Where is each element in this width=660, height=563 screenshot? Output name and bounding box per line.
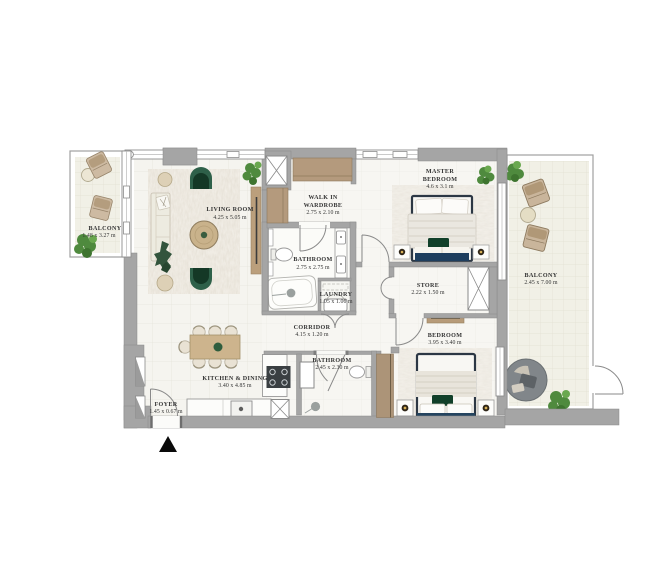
svg-text:BALCONY: BALCONY: [89, 226, 122, 232]
svg-text:4.25 x 5.05 m: 4.25 x 5.05 m: [213, 215, 247, 221]
svg-text:1.45 x 0.67 m: 1.45 x 0.67 m: [149, 409, 183, 415]
svg-text:1.05 x 1.00 m: 1.05 x 1.00 m: [319, 299, 353, 305]
svg-text:BATHROOM: BATHROOM: [312, 358, 351, 364]
svg-text:1.48 x 3.27 m: 1.48 x 3.27 m: [82, 233, 116, 239]
svg-text:4.6 x 3.1 m: 4.6 x 3.1 m: [426, 184, 454, 190]
svg-text:LAUNDRY: LAUNDRY: [320, 292, 353, 298]
svg-text:BALCONY: BALCONY: [525, 273, 558, 279]
svg-text:CORRIDOR: CORRIDOR: [294, 325, 331, 331]
svg-text:FOYER: FOYER: [154, 402, 177, 408]
svg-text:WARDROBE: WARDROBE: [304, 203, 343, 209]
svg-text:2.45 x 7.00 m: 2.45 x 7.00 m: [524, 280, 558, 286]
svg-text:4.15 x 1.20 m: 4.15 x 1.20 m: [295, 332, 329, 338]
svg-text:2.22 x 1.50 m: 2.22 x 1.50 m: [411, 290, 445, 296]
svg-text:2.45 x 2.30 m: 2.45 x 2.30 m: [315, 365, 349, 371]
svg-text:WALK IN: WALK IN: [308, 195, 338, 201]
svg-text:3.95 x 3.40 m: 3.95 x 3.40 m: [428, 340, 462, 346]
svg-text:MASTER: MASTER: [426, 169, 454, 175]
svg-text:LIVING ROOM: LIVING ROOM: [206, 207, 253, 213]
svg-text:STORE: STORE: [417, 283, 439, 289]
svg-text:KITCHEN & DINING: KITCHEN & DINING: [202, 376, 267, 382]
svg-text:2.75 x 2.10 m: 2.75 x 2.10 m: [306, 210, 340, 216]
svg-text:BEDROOM: BEDROOM: [428, 333, 463, 339]
svg-text:BATHROOM: BATHROOM: [293, 257, 332, 263]
svg-text:3.40 x 4.85 m: 3.40 x 4.85 m: [218, 383, 252, 389]
svg-text:2.75 x 2.75 m: 2.75 x 2.75 m: [296, 265, 330, 271]
svg-text:BEDROOM: BEDROOM: [423, 177, 458, 183]
